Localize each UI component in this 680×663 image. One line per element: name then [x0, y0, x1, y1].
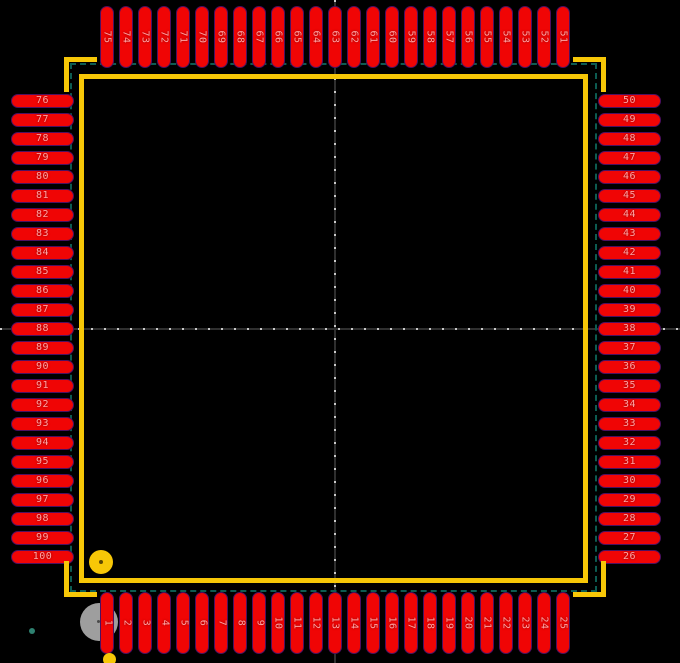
pad-number: 55 [482, 30, 492, 43]
pad[interactable]: 63 [328, 6, 342, 68]
pad-number: 5 [178, 620, 188, 627]
pad-number: 96 [36, 476, 49, 486]
pad[interactable]: 9 [252, 592, 266, 654]
pad[interactable]: 69 [214, 6, 228, 68]
pad-number: 88 [36, 324, 49, 334]
pad-number: 97 [36, 495, 49, 505]
pad[interactable]: 49 [598, 113, 661, 127]
pad-number: 10 [273, 616, 283, 629]
pad[interactable]: 91 [11, 379, 74, 393]
pad-number: 34 [623, 400, 636, 410]
pad[interactable]: 37 [598, 341, 661, 355]
pad-number: 52 [539, 30, 549, 43]
pad[interactable]: 48 [598, 132, 661, 146]
pad-number: 42 [623, 248, 636, 258]
pad-number: 87 [36, 305, 49, 315]
pad-number: 18 [425, 616, 435, 629]
pad[interactable]: 45 [598, 189, 661, 203]
pad[interactable]: 86 [11, 284, 74, 298]
pad[interactable]: 28 [598, 512, 661, 526]
pad[interactable]: 22 [499, 592, 513, 654]
pad[interactable]: 13 [328, 592, 342, 654]
pad[interactable]: 71 [176, 6, 190, 68]
pad[interactable]: 80 [11, 170, 74, 184]
pad-number: 57 [444, 30, 454, 43]
pad-number: 77 [36, 115, 49, 125]
pad[interactable]: 55 [480, 6, 494, 68]
pad[interactable]: 57 [442, 6, 456, 68]
pad-number: 40 [623, 286, 636, 296]
pad[interactable]: 38 [598, 322, 661, 336]
pad[interactable]: 6 [195, 592, 209, 654]
pad[interactable]: 20 [461, 592, 475, 654]
pad[interactable]: 85 [11, 265, 74, 279]
pad-number: 39 [623, 305, 636, 315]
pad-number: 78 [36, 134, 49, 144]
pad-number: 27 [623, 533, 636, 543]
pad-number: 56 [463, 30, 473, 43]
pad-number: 49 [623, 115, 636, 125]
pad[interactable]: 12 [309, 592, 323, 654]
pad-number: 23 [520, 616, 530, 629]
pad[interactable]: 10 [271, 592, 285, 654]
pad[interactable]: 73 [138, 6, 152, 68]
pad[interactable]: 78 [11, 132, 74, 146]
pad-number: 54 [501, 30, 511, 43]
pad-number: 76 [36, 96, 49, 106]
pad[interactable]: 77 [11, 113, 74, 127]
pad[interactable]: 44 [598, 208, 661, 222]
pad[interactable]: 83 [11, 227, 74, 241]
pad-number: 22 [501, 616, 511, 629]
pad[interactable]: 72 [157, 6, 171, 68]
pad-number: 84 [36, 248, 49, 258]
pad[interactable]: 7 [214, 592, 228, 654]
pad-number: 2 [121, 620, 131, 627]
pad[interactable]: 56 [461, 6, 475, 68]
pad[interactable]: 74 [119, 6, 133, 68]
pad[interactable]: 99 [11, 531, 74, 545]
pad-number: 94 [36, 438, 49, 448]
pad[interactable]: 26 [598, 550, 661, 564]
pad-number: 83 [36, 229, 49, 239]
pad[interactable]: 46 [598, 170, 661, 184]
pad[interactable]: 96 [11, 474, 74, 488]
pad[interactable]: 24 [537, 592, 551, 654]
pad-number: 31 [623, 457, 636, 467]
pad-number: 79 [36, 153, 49, 163]
pad-number: 73 [140, 30, 150, 43]
pad[interactable]: 43 [598, 227, 661, 241]
pad-number: 51 [558, 30, 568, 43]
pad-number: 99 [36, 533, 49, 543]
pad-number: 3 [140, 620, 150, 627]
pad[interactable]: 75 [100, 6, 114, 68]
pad-number: 90 [36, 362, 49, 372]
pad[interactable]: 60 [385, 6, 399, 68]
pad-number: 1 [102, 620, 112, 627]
pad[interactable]: 3 [138, 592, 152, 654]
pad-number: 80 [36, 172, 49, 182]
pad[interactable]: 51 [556, 6, 570, 68]
pad-number: 25 [558, 616, 568, 629]
pad-number: 24 [539, 616, 549, 629]
pad-number: 36 [623, 362, 636, 372]
component-body-outline[interactable] [79, 74, 588, 583]
pad-number: 41 [623, 267, 636, 277]
pin1-indicator-dot[interactable] [89, 550, 113, 574]
pad-number: 47 [623, 153, 636, 163]
pad-number: 7 [216, 620, 226, 627]
pad[interactable]: 67 [252, 6, 266, 68]
pad[interactable]: 2 [119, 592, 133, 654]
pad[interactable]: 90 [11, 360, 74, 374]
pad[interactable]: 64 [309, 6, 323, 68]
pad[interactable]: 29 [598, 493, 661, 507]
pad[interactable]: 41 [598, 265, 661, 279]
pad[interactable]: 61 [366, 6, 380, 68]
pad-number: 74 [121, 30, 131, 43]
pad[interactable]: 32 [598, 436, 661, 450]
pad[interactable]: 53 [518, 6, 532, 68]
pad[interactable]: 95 [11, 455, 74, 469]
pad[interactable]: 33 [598, 417, 661, 431]
pad-number: 32 [623, 438, 636, 448]
pad[interactable]: 21 [480, 592, 494, 654]
pad-number: 82 [36, 210, 49, 220]
pad-number: 46 [623, 172, 636, 182]
pad[interactable]: 97 [11, 493, 74, 507]
pad-number: 15 [368, 616, 378, 629]
pad-number: 60 [387, 30, 397, 43]
pad[interactable]: 98 [11, 512, 74, 526]
pad[interactable]: 70 [195, 6, 209, 68]
pad-number: 68 [235, 30, 245, 43]
pad-number: 48 [623, 134, 636, 144]
pad[interactable]: 17 [404, 592, 418, 654]
pcb-footprint-canvas: 7574737271706968676665646362616059585756… [0, 0, 680, 663]
pad-number: 6 [197, 620, 207, 627]
pad[interactable]: 15 [366, 592, 380, 654]
pad-number: 81 [36, 191, 49, 201]
pad-number: 66 [273, 30, 283, 43]
pad-number: 29 [623, 495, 636, 505]
silkscreen-dot-bottom-edge[interactable] [103, 653, 116, 663]
pad-number: 8 [235, 620, 245, 627]
pad-number: 98 [36, 514, 49, 524]
pad-number: 35 [623, 381, 636, 391]
pad-number: 59 [406, 30, 416, 43]
pad[interactable]: 94 [11, 436, 74, 450]
pad[interactable]: 18 [423, 592, 437, 654]
pad[interactable]: 50 [598, 94, 661, 108]
pad[interactable]: 79 [11, 151, 74, 165]
pad-number: 71 [178, 30, 188, 43]
pad-number: 86 [36, 286, 49, 296]
pad[interactable]: 62 [347, 6, 361, 68]
pad-number: 26 [623, 552, 636, 562]
pad-number: 9 [254, 620, 264, 627]
pad[interactable]: 31 [598, 455, 661, 469]
pad[interactable]: 93 [11, 417, 74, 431]
pad[interactable]: 68 [233, 6, 247, 68]
pad-number: 89 [36, 343, 49, 353]
pad[interactable]: 25 [556, 592, 570, 654]
pad[interactable]: 14 [347, 592, 361, 654]
pad-number: 21 [482, 616, 492, 629]
pad-number: 4 [159, 620, 169, 627]
pad-number: 30 [623, 476, 636, 486]
pad-number: 13 [330, 616, 340, 629]
pad[interactable]: 11 [290, 592, 304, 654]
pad[interactable]: 59 [404, 6, 418, 68]
pad-number: 92 [36, 400, 49, 410]
pad-number: 53 [520, 30, 530, 43]
silkscreen-corner-bottom-right[interactable] [573, 561, 606, 597]
pad[interactable]: 84 [11, 246, 74, 260]
pin1-dot-center [99, 560, 103, 564]
pad-number: 28 [623, 514, 636, 524]
pad-number: 64 [311, 30, 321, 43]
pad[interactable]: 81 [11, 189, 74, 203]
pad-number: 50 [623, 96, 636, 106]
pad-number: 43 [623, 229, 636, 239]
pad[interactable]: 66 [271, 6, 285, 68]
pad-number: 61 [368, 30, 378, 43]
pad-number: 75 [102, 30, 112, 43]
pad[interactable]: 23 [518, 592, 532, 654]
pad-number: 17 [406, 616, 416, 629]
pad-number: 67 [254, 30, 264, 43]
pad-number: 37 [623, 343, 636, 353]
pad[interactable]: 87 [11, 303, 74, 317]
pad-number: 14 [349, 616, 359, 629]
pad-number: 19 [444, 616, 454, 629]
stray-grid-dot [29, 628, 35, 634]
pad[interactable]: 36 [598, 360, 661, 374]
pad[interactable]: 65 [290, 6, 304, 68]
pad-number: 44 [623, 210, 636, 220]
pad[interactable]: 40 [598, 284, 661, 298]
pad[interactable]: 58 [423, 6, 437, 68]
pad-number: 33 [623, 419, 636, 429]
pad-number: 100 [33, 552, 53, 562]
pad[interactable]: 39 [598, 303, 661, 317]
pad-number: 95 [36, 457, 49, 467]
pad-number: 70 [197, 30, 207, 43]
pad[interactable]: 42 [598, 246, 661, 260]
pad[interactable]: 92 [11, 398, 74, 412]
pad-number: 20 [463, 616, 473, 629]
pad[interactable]: 1 [100, 592, 114, 654]
pad[interactable]: 19 [442, 592, 456, 654]
silkscreen-corner-top-right[interactable] [573, 57, 606, 92]
pad-number: 11 [292, 616, 302, 629]
pad[interactable]: 54 [499, 6, 513, 68]
pad[interactable]: 30 [598, 474, 661, 488]
pad[interactable]: 76 [11, 94, 74, 108]
pad-number: 45 [623, 191, 636, 201]
pad-number: 93 [36, 419, 49, 429]
pad[interactable]: 82 [11, 208, 74, 222]
pad[interactable]: 8 [233, 592, 247, 654]
pad-number: 63 [330, 30, 340, 43]
pad[interactable]: 27 [598, 531, 661, 545]
pad-number: 65 [292, 30, 302, 43]
pad[interactable]: 34 [598, 398, 661, 412]
pad-number: 16 [387, 616, 397, 629]
pad-number: 91 [36, 381, 49, 391]
pad[interactable]: 89 [11, 341, 74, 355]
pad[interactable]: 35 [598, 379, 661, 393]
pad[interactable]: 5 [176, 592, 190, 654]
pad-number: 58 [425, 30, 435, 43]
pad[interactable]: 16 [385, 592, 399, 654]
pad-number: 38 [623, 324, 636, 334]
pad[interactable]: 52 [537, 6, 551, 68]
silkscreen-corner-top-left[interactable] [64, 57, 97, 92]
pad[interactable]: 4 [157, 592, 171, 654]
pad[interactable]: 88 [11, 322, 74, 336]
pad[interactable]: 47 [598, 151, 661, 165]
pad-number: 69 [216, 30, 226, 43]
pad-number: 62 [349, 30, 359, 43]
pad-number: 72 [159, 30, 169, 43]
pad-number: 12 [311, 616, 321, 629]
pad-number: 85 [36, 267, 49, 277]
